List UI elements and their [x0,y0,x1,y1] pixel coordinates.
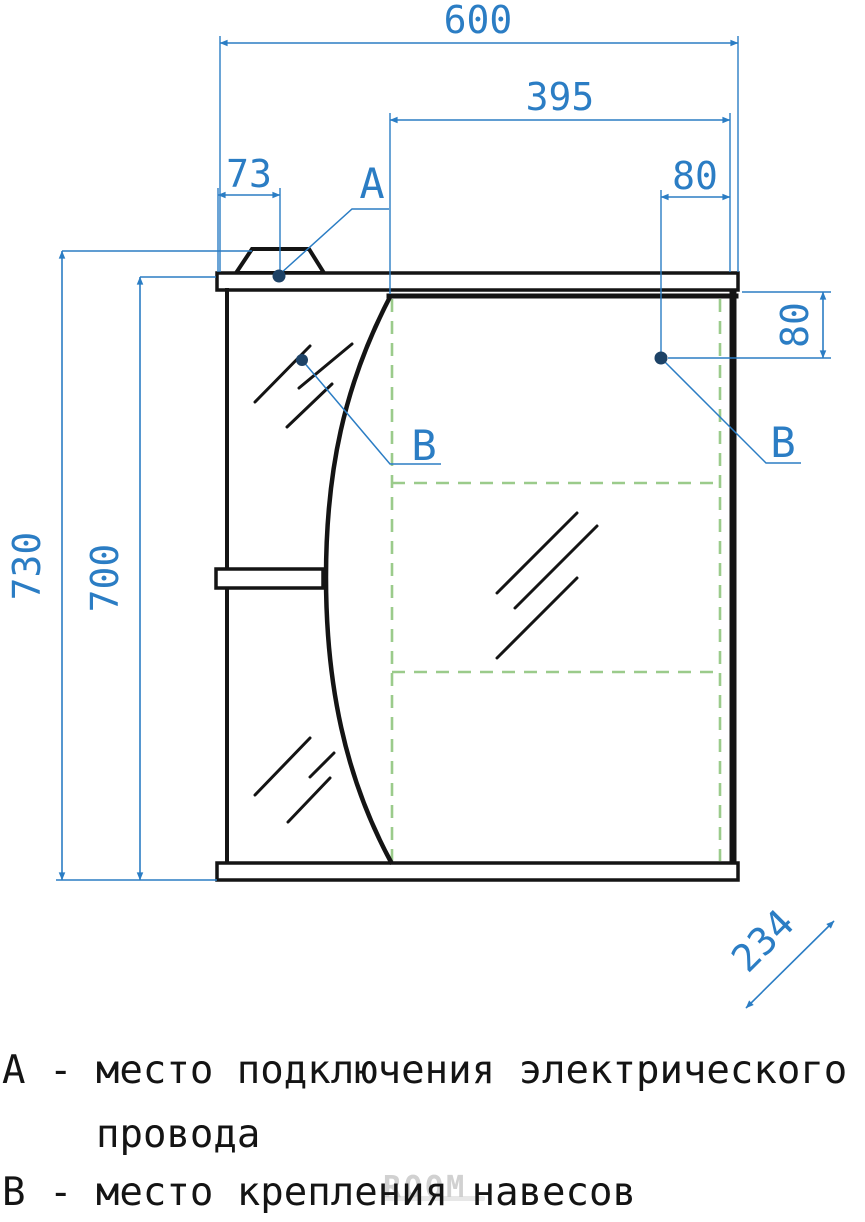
dim-total-width-label: 600 [444,0,513,42]
point-b-right-label: В [770,418,795,467]
legend-line-a: А - место подключения электрического [2,1048,847,1093]
point-markers [273,209,802,464]
top-board [217,273,738,290]
shelf [216,569,323,588]
dim-hinge-offset-side-label: 80 [773,302,817,348]
dim-hinge-offset-top-label: 80 [672,154,718,198]
dim-lamp-offset-label: 73 [226,152,272,196]
cabinet-drawing: 600 395 73 80 80 730 700 234 А В В [0,0,865,1040]
dim-body-height-label: 700 [83,544,127,613]
dim-total-height-label: 730 [5,532,49,601]
cabinet-outline [216,249,738,880]
point-b-left-label: В [411,421,436,470]
glass-hatch-door [497,513,597,658]
door-curved-edge [326,297,391,862]
technical-drawing-page: 600 395 73 80 80 730 700 234 А В В ROOM … [0,0,865,1222]
glass-hatch-left-lower [255,738,334,822]
point-b-left-dot [296,354,308,366]
point-a-label: А [359,159,384,208]
point-a-dot [273,270,286,283]
mirror-position-dashed-lines [392,299,720,861]
dim-depth-label: 234 [723,901,803,981]
dim-door-width-label: 395 [526,75,595,119]
point-b-right-dot [655,352,668,365]
legend-line-b: В - место крепления навесов [2,1170,636,1215]
legend-line-a-continued: провода [2,1112,260,1157]
bottom-board [217,863,738,880]
